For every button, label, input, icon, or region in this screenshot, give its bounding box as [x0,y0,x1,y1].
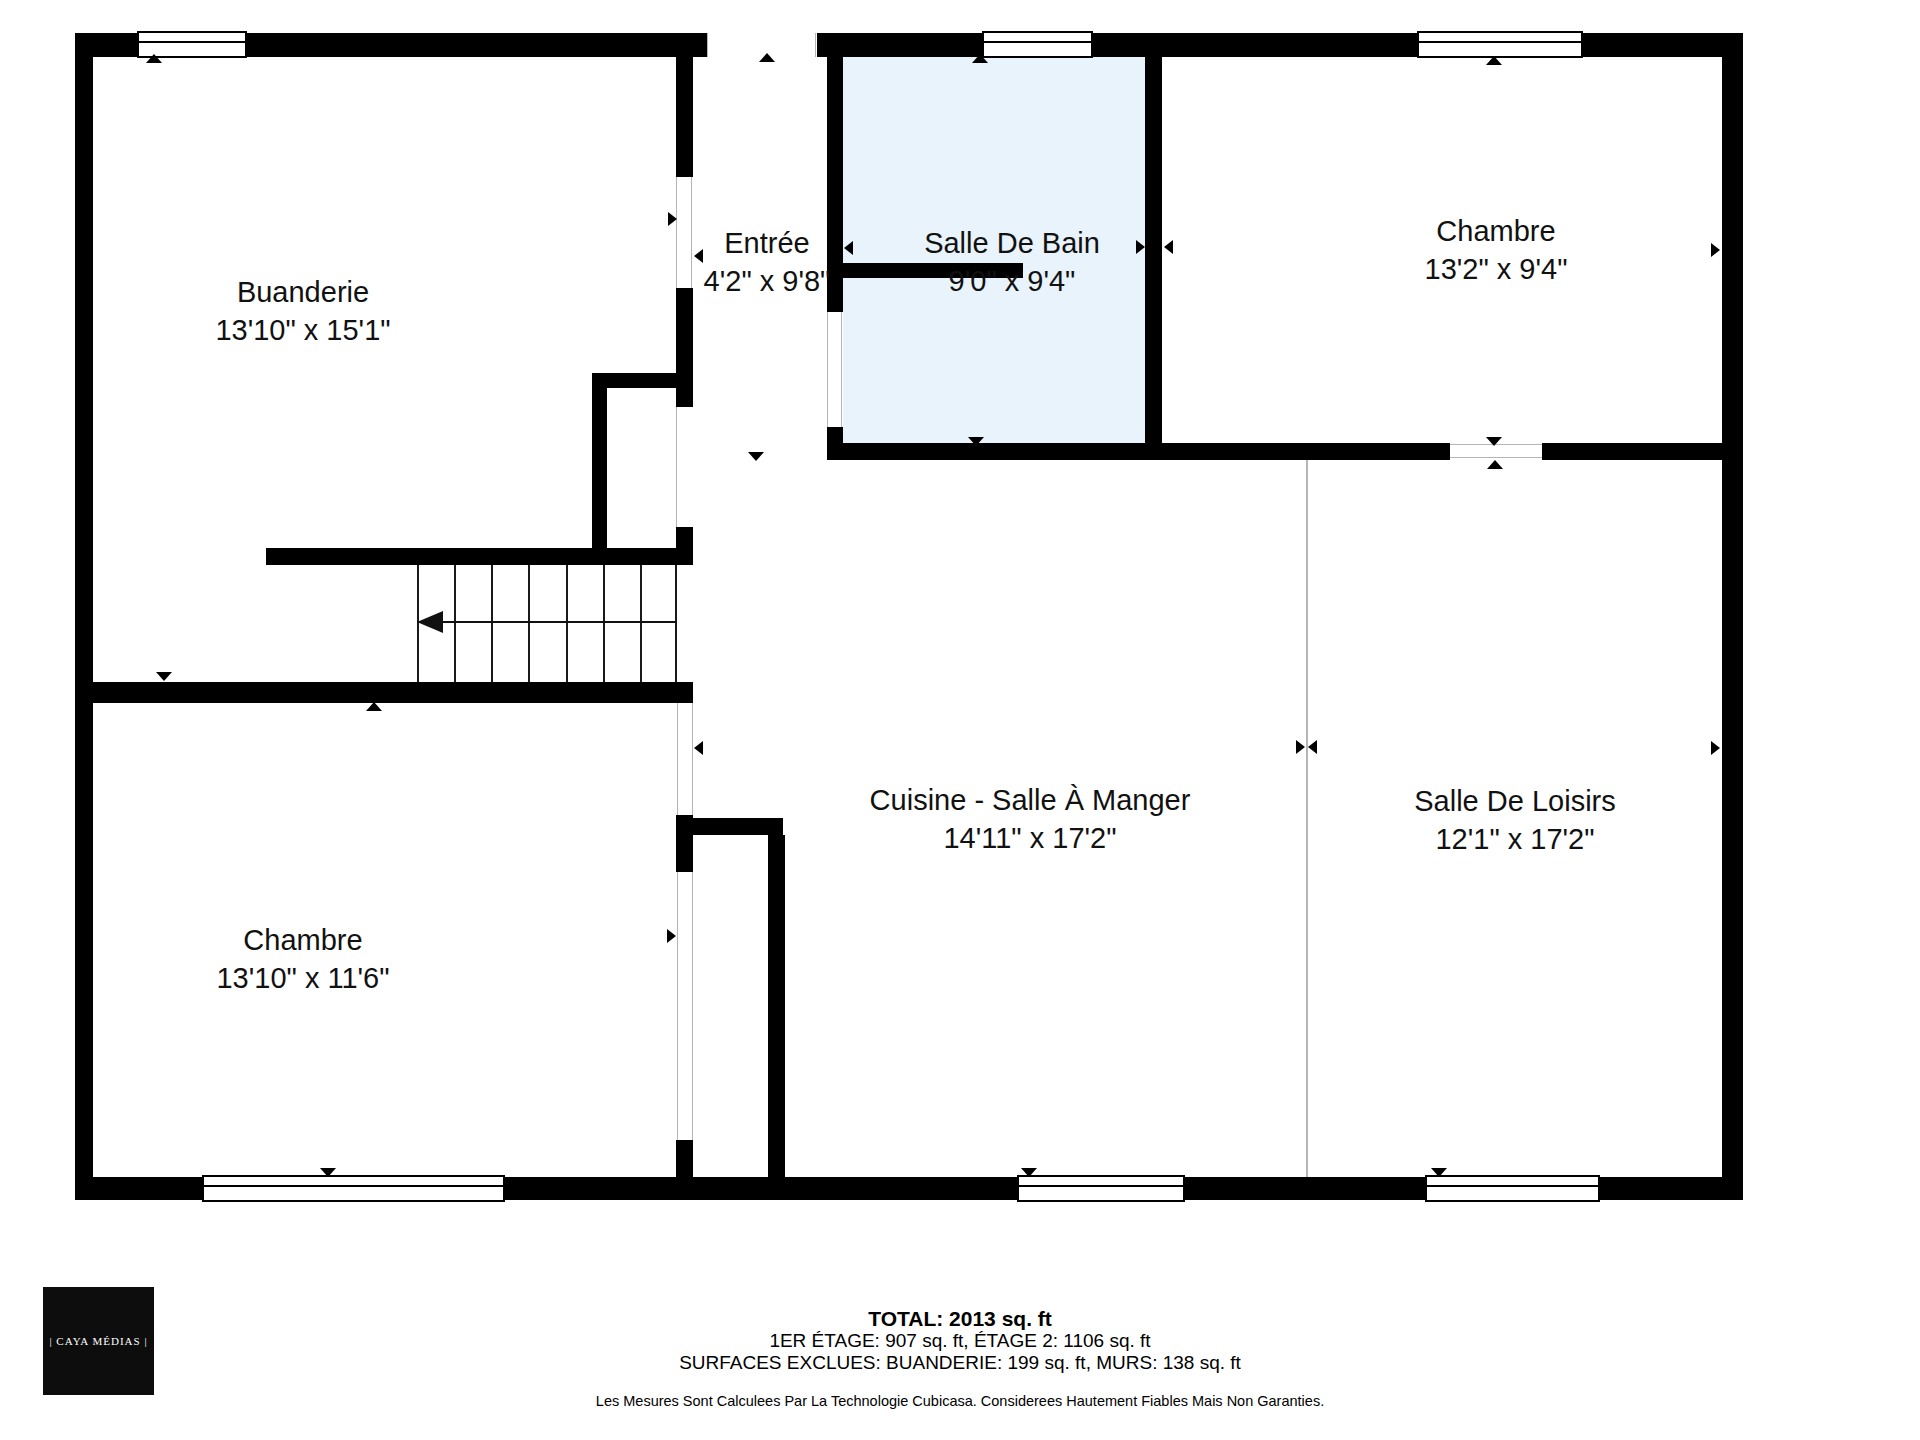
stair-upper-wall-cap [676,527,693,565]
footer-disclaimer: Les Mesures Sont Calculees Par La Techno… [596,1393,1324,1409]
floorplan-page: Buanderie 13'10" x 15'1" Entrée 4'2" x 9… [0,0,1920,1440]
room-label-entree: Entrée 4'2" x 9'8" [704,224,831,300]
door-marker-icon [1487,460,1503,469]
room-name: Salle De Loisirs [1414,782,1615,820]
buanderie-door-gap-edge [691,177,692,288]
window-marker-icon [1486,56,1502,65]
window-marker-icon [1021,1168,1037,1177]
chambre-bas-top-wall [75,682,693,703]
room-label-loisirs: Salle De Loisirs 12'1" x 17'2" [1414,782,1615,858]
opening-marker-icon [748,452,764,461]
room-label-salle-de-bain: Salle De Bain 9'0" x 9'4" [924,224,1100,300]
stair-closet-left-wall [592,373,607,550]
window-marker-icon [972,54,988,63]
door-marker-icon [1164,240,1173,254]
entry-gap-edge [707,33,708,57]
door-marker-icon [1711,243,1720,257]
room-dimensions: 13'10" x 11'6" [216,959,389,997]
room-dimensions: 12'1" x 17'2" [1414,820,1615,858]
corridor-open-boundary [692,703,693,815]
window-cuisine-bottom [1017,1175,1185,1202]
room-dimensions: 9'0" x 9'4" [924,262,1100,300]
window-loisirs-bottom [1425,1175,1600,1202]
window-chambre-bas-bottom [202,1175,505,1202]
stair-tread [491,565,493,682]
door-marker-icon [667,929,676,943]
room-name: Salle De Bain [924,224,1100,262]
door-marker-icon [694,249,703,263]
bathroom-bottom-wall [827,443,1450,460]
buanderie-door-gap-edge [676,177,677,288]
chambre-haut-door-gap-edge [1450,457,1542,458]
window-marker-icon [146,54,162,63]
window-chambre-haut-top [1417,31,1583,58]
door-marker-icon [366,702,382,711]
corridor-wall-stub-mid [676,815,693,872]
stair-tread [603,565,605,682]
corridor-open-boundary [677,703,678,815]
entree-left-wall-upper [676,33,693,177]
room-dimensions: 14'11" x 17'2" [870,819,1191,857]
door-marker-icon [84,211,93,225]
exterior-wall-top-right [817,33,1743,57]
door-marker-icon [668,212,677,226]
cuisine-loisirs-divider [1306,460,1308,1177]
door-marker-icon [1711,741,1720,755]
bathroom-door-gap-edge [827,312,828,427]
door-marker-icon [156,672,172,681]
room-name: Chambre [1425,212,1568,250]
exterior-wall-left [75,33,93,1200]
door-marker-icon [844,241,853,255]
stair-tread [675,565,677,682]
stair-tread [640,565,642,682]
footer-total: TOTAL: 2013 sq. ft [868,1307,1052,1331]
door-marker-icon [1486,437,1502,446]
window-marker-icon [320,1168,336,1177]
room-dimensions: 4'2" x 9'8" [704,262,831,300]
entry-gap-edge [815,33,816,57]
stair-direction-line [441,621,677,623]
chambre-bas-right-wall [768,835,785,1177]
stair-tread [454,565,456,682]
room-name: Cuisine - Salle À Manger [870,781,1191,819]
stair-closet-top-wall [592,373,693,388]
bathroom-door-gap-edge [841,312,842,427]
closet-open-boundary [676,407,677,527]
room-label-chambre-haut: Chambre 13'2" x 9'4" [1425,212,1568,288]
door-marker-icon [1136,240,1145,254]
logo-text: | CAYA MÉDIAS | [49,1335,147,1347]
room-name: Entrée [704,224,831,262]
stair-tread [566,565,568,682]
closet-top-wall [693,818,783,835]
room-label-cuisine: Cuisine - Salle À Manger 14'11" x 17'2" [870,781,1191,857]
divider-marker-icon [1308,740,1317,754]
footer-etages: 1ER ÉTAGE: 907 sq. ft, ÉTAGE 2: 1106 sq.… [769,1330,1150,1352]
caya-medias-logo: | CAYA MÉDIAS | [43,1287,154,1395]
footer-exclusions: SURFACES EXCLUES: BUANDERIE: 199 sq. ft,… [679,1352,1241,1374]
closet-open-boundary [677,872,678,1140]
stair-direction-arrow-icon [417,611,443,633]
room-label-chambre-bas: Chambre 13'10" x 11'6" [216,921,389,997]
chambre-haut-bottom-wall-right [1542,443,1743,460]
bathroom-right-wall [1145,33,1162,460]
room-name: Buanderie [215,273,390,311]
room-dimensions: 13'2" x 9'4" [1425,250,1568,288]
entree-left-wall-lower [676,288,693,407]
opening-marker-icon [968,437,984,446]
room-name: Chambre [216,921,389,959]
exterior-wall-right [1722,33,1743,1200]
stair-upper-wall [266,548,693,565]
closet-open-boundary [692,872,693,1140]
corridor-wall-stub-bottom [676,1140,693,1177]
staircase [417,565,677,682]
divider-marker-icon [1296,740,1305,754]
stair-tread [528,565,530,682]
window-marker-icon [1431,1168,1447,1177]
window-bathroom-top [982,31,1093,58]
room-label-buanderie: Buanderie 13'10" x 15'1" [215,273,390,349]
door-marker-icon [694,741,703,755]
entry-marker-icon [759,53,775,62]
room-dimensions: 13'10" x 15'1" [215,311,390,349]
